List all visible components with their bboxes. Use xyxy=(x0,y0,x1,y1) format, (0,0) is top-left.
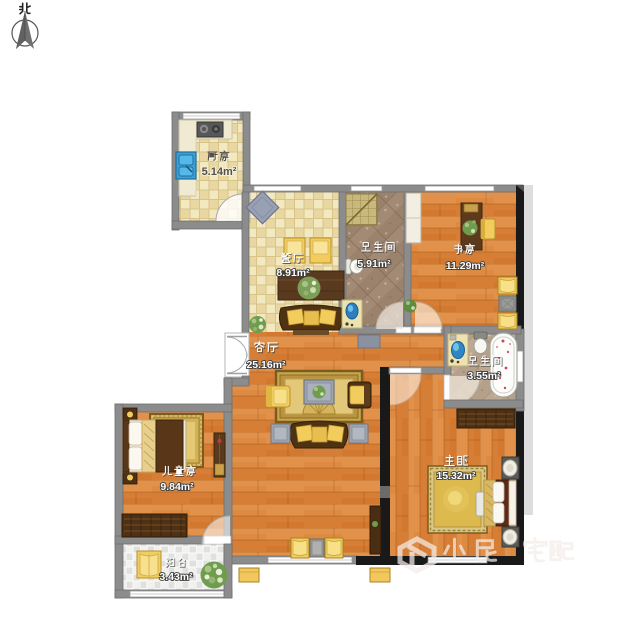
svg-text:25.16m²: 25.16m² xyxy=(246,359,286,371)
svg-text:5.14m²: 5.14m² xyxy=(202,166,237,178)
svg-text:3.43m²: 3.43m² xyxy=(159,571,193,583)
svg-text:15.32m²: 15.32m² xyxy=(436,470,476,482)
svg-text:9.84m²: 9.84m² xyxy=(160,481,194,493)
svg-text:8.91m²: 8.91m² xyxy=(276,267,310,279)
svg-text:3.55m²: 3.55m² xyxy=(467,370,501,382)
svg-text:5.91m²: 5.91m² xyxy=(357,258,391,270)
svg-text:11.29m²: 11.29m² xyxy=(446,260,485,272)
